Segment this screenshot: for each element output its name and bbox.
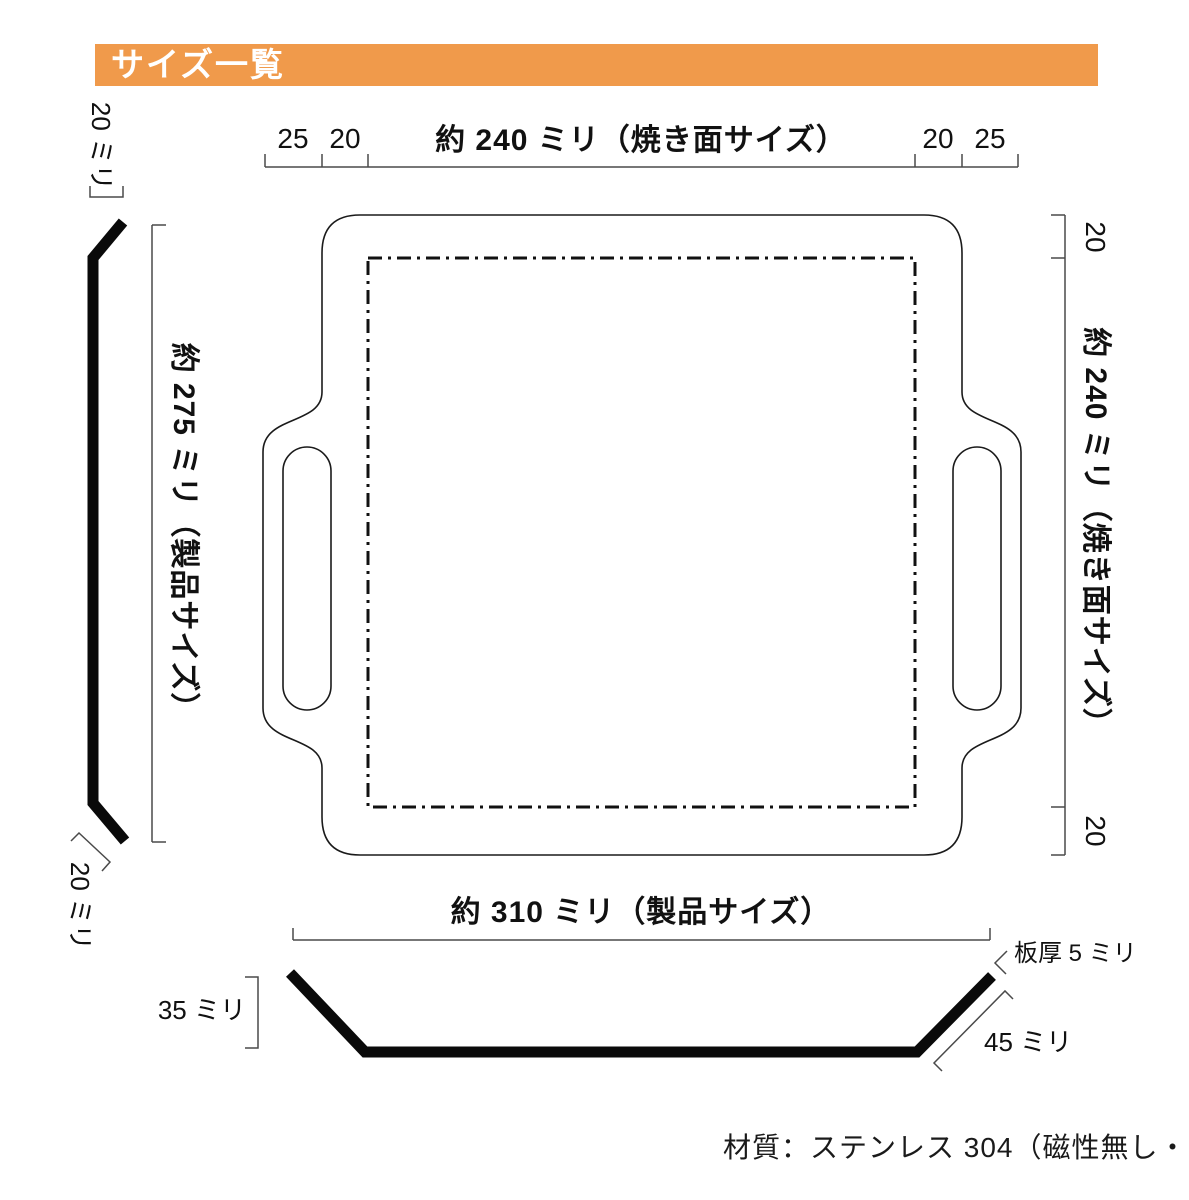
- top-dim-right-inner: 20: [922, 123, 953, 154]
- edge-length-label: 45 ミリ: [984, 1027, 1072, 1057]
- side-profile-left: [93, 222, 125, 841]
- size-chart-page: サイズ一覧 25 20 約 240 ミリ（焼き面サイズ） 20 25 20 約 …: [0, 0, 1189, 1200]
- top-dim-left-inner: 20: [329, 123, 360, 154]
- left-dimension-line: [152, 225, 166, 842]
- dimension-diagram: 25 20 約 240 ミリ（焼き面サイズ） 20 25 20 約 240 ミリ…: [0, 0, 1189, 1200]
- side-profile-bottom: [290, 973, 992, 1052]
- thickness-leader: [995, 951, 1007, 974]
- right-dim-top: 20: [1080, 221, 1111, 252]
- top-dim-label: 約 240 ミリ（焼き面サイズ）: [435, 123, 847, 157]
- material-note: 材質：ステンレス 304（磁性無し・国産）: [723, 1132, 1189, 1163]
- top-dim-left-outer: 25: [277, 123, 308, 154]
- thickness-label: 板厚 5 ミリ: [1014, 940, 1137, 967]
- bottom-dim-label: 約 310 ミリ（製品サイズ）: [451, 895, 832, 929]
- bottom-dimension-line: [293, 928, 990, 940]
- right-dim-bottom: 20: [1080, 815, 1111, 846]
- right-dimension-line: [1051, 215, 1065, 855]
- handle-hole-right: [953, 447, 1001, 710]
- depth-label: 35 ミリ: [158, 995, 246, 1025]
- depth-bracket: [245, 977, 258, 1048]
- left-bottom-edge-label: 20 ミリ: [65, 862, 95, 950]
- left-dim-label: 約 275 ミリ（製品サイズ）: [167, 343, 201, 724]
- handle-hole-left: [283, 447, 331, 710]
- right-dim-label: 約 240 ミリ（焼き面サイズ）: [1079, 327, 1113, 739]
- plate-top-view: [263, 215, 1021, 855]
- top-dim-right-outer: 25: [974, 123, 1005, 154]
- left-top-edge-label: 20 ミリ: [86, 102, 116, 190]
